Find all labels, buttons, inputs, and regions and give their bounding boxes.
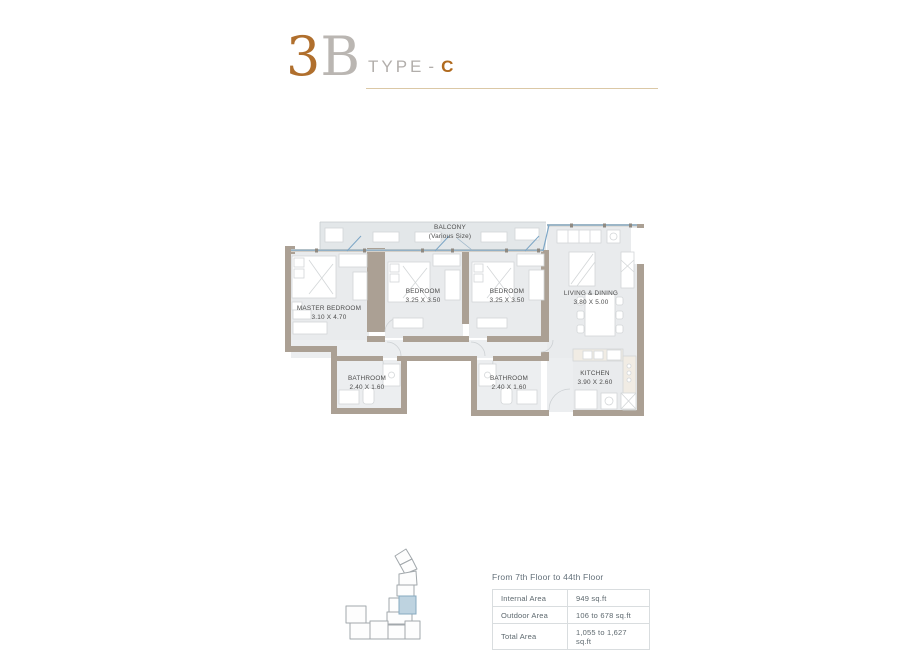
table-row: Outdoor Area 106 to 678 sq.ft: [493, 607, 650, 624]
room-label-balcony: BALCONY (Various Size): [429, 224, 471, 241]
type-label: TYPE: [368, 57, 424, 76]
room-label-bedroom-2: BEDROOM 3.25 X 3.50: [490, 288, 525, 305]
table-row: Internal Area 949 sq.ft: [493, 590, 650, 607]
area-details: From 7th Floor to 44th Floor Internal Ar…: [492, 572, 652, 650]
area-row-value: 1,055 to 1,627 sq.ft: [568, 624, 650, 650]
room-label-master-bedroom: MASTER BEDROOM 3.10 X 4.70: [297, 305, 361, 322]
key-plan-drawing: [343, 546, 423, 646]
title-underline: [366, 88, 658, 89]
key-plan-highlighted-unit: [399, 596, 416, 614]
area-row-label: Internal Area: [493, 590, 568, 607]
floors-note: From 7th Floor to 44th Floor: [492, 572, 652, 582]
floor-plan: BALCONY (Various Size) MASTER BEDROOM 3.…: [285, 210, 657, 430]
area-row-label: Outdoor Area: [493, 607, 568, 624]
room-label-living-dining: LIVING & DINING 3.80 X 5.00: [564, 290, 618, 307]
unit-number: 3: [286, 25, 320, 88]
brochure-page: 3B TYPE-C: [0, 0, 915, 655]
room-label-bedroom-1: BEDROOM 3.25 X 3.50: [406, 288, 441, 305]
area-table: Internal Area 949 sq.ft Outdoor Area 106…: [492, 589, 650, 650]
table-row: Total Area 1,055 to 1,627 sq.ft: [493, 624, 650, 650]
type-separator: -: [428, 57, 437, 76]
area-row-label: Total Area: [493, 624, 568, 650]
unit-letter: B: [320, 25, 360, 88]
area-row-value: 949 sq.ft: [568, 590, 650, 607]
key-plan: [343, 546, 423, 646]
type-line: TYPE-C: [368, 57, 454, 77]
room-label-bathroom-2: BATHROOM 2.40 X 1.60: [490, 375, 528, 392]
area-row-value: 106 to 678 sq.ft: [568, 607, 650, 624]
room-label-bathroom-1: BATHROOM 2.40 X 1.60: [348, 375, 386, 392]
room-label-kitchen: KITCHEN 3.90 X 2.60: [578, 370, 613, 387]
page-title: 3B: [286, 30, 360, 84]
type-value: C: [441, 57, 454, 76]
